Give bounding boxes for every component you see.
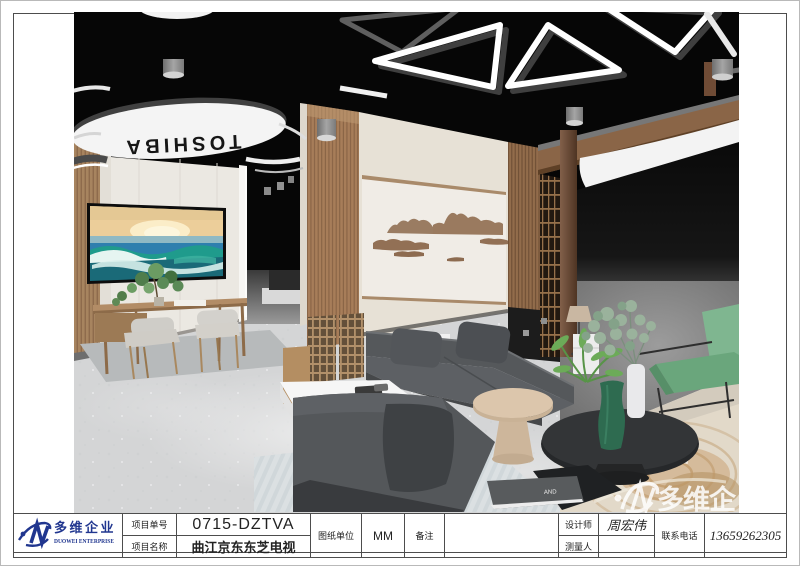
svg-text:多维企业: 多维企业 — [54, 520, 116, 535]
svg-text:DUOWEI ENTERPRISE: DUOWEI ENTERPRISE — [54, 539, 114, 545]
svg-text:多维企: 多维企 — [657, 484, 737, 513]
svg-text:AND: AND — [544, 489, 558, 496]
